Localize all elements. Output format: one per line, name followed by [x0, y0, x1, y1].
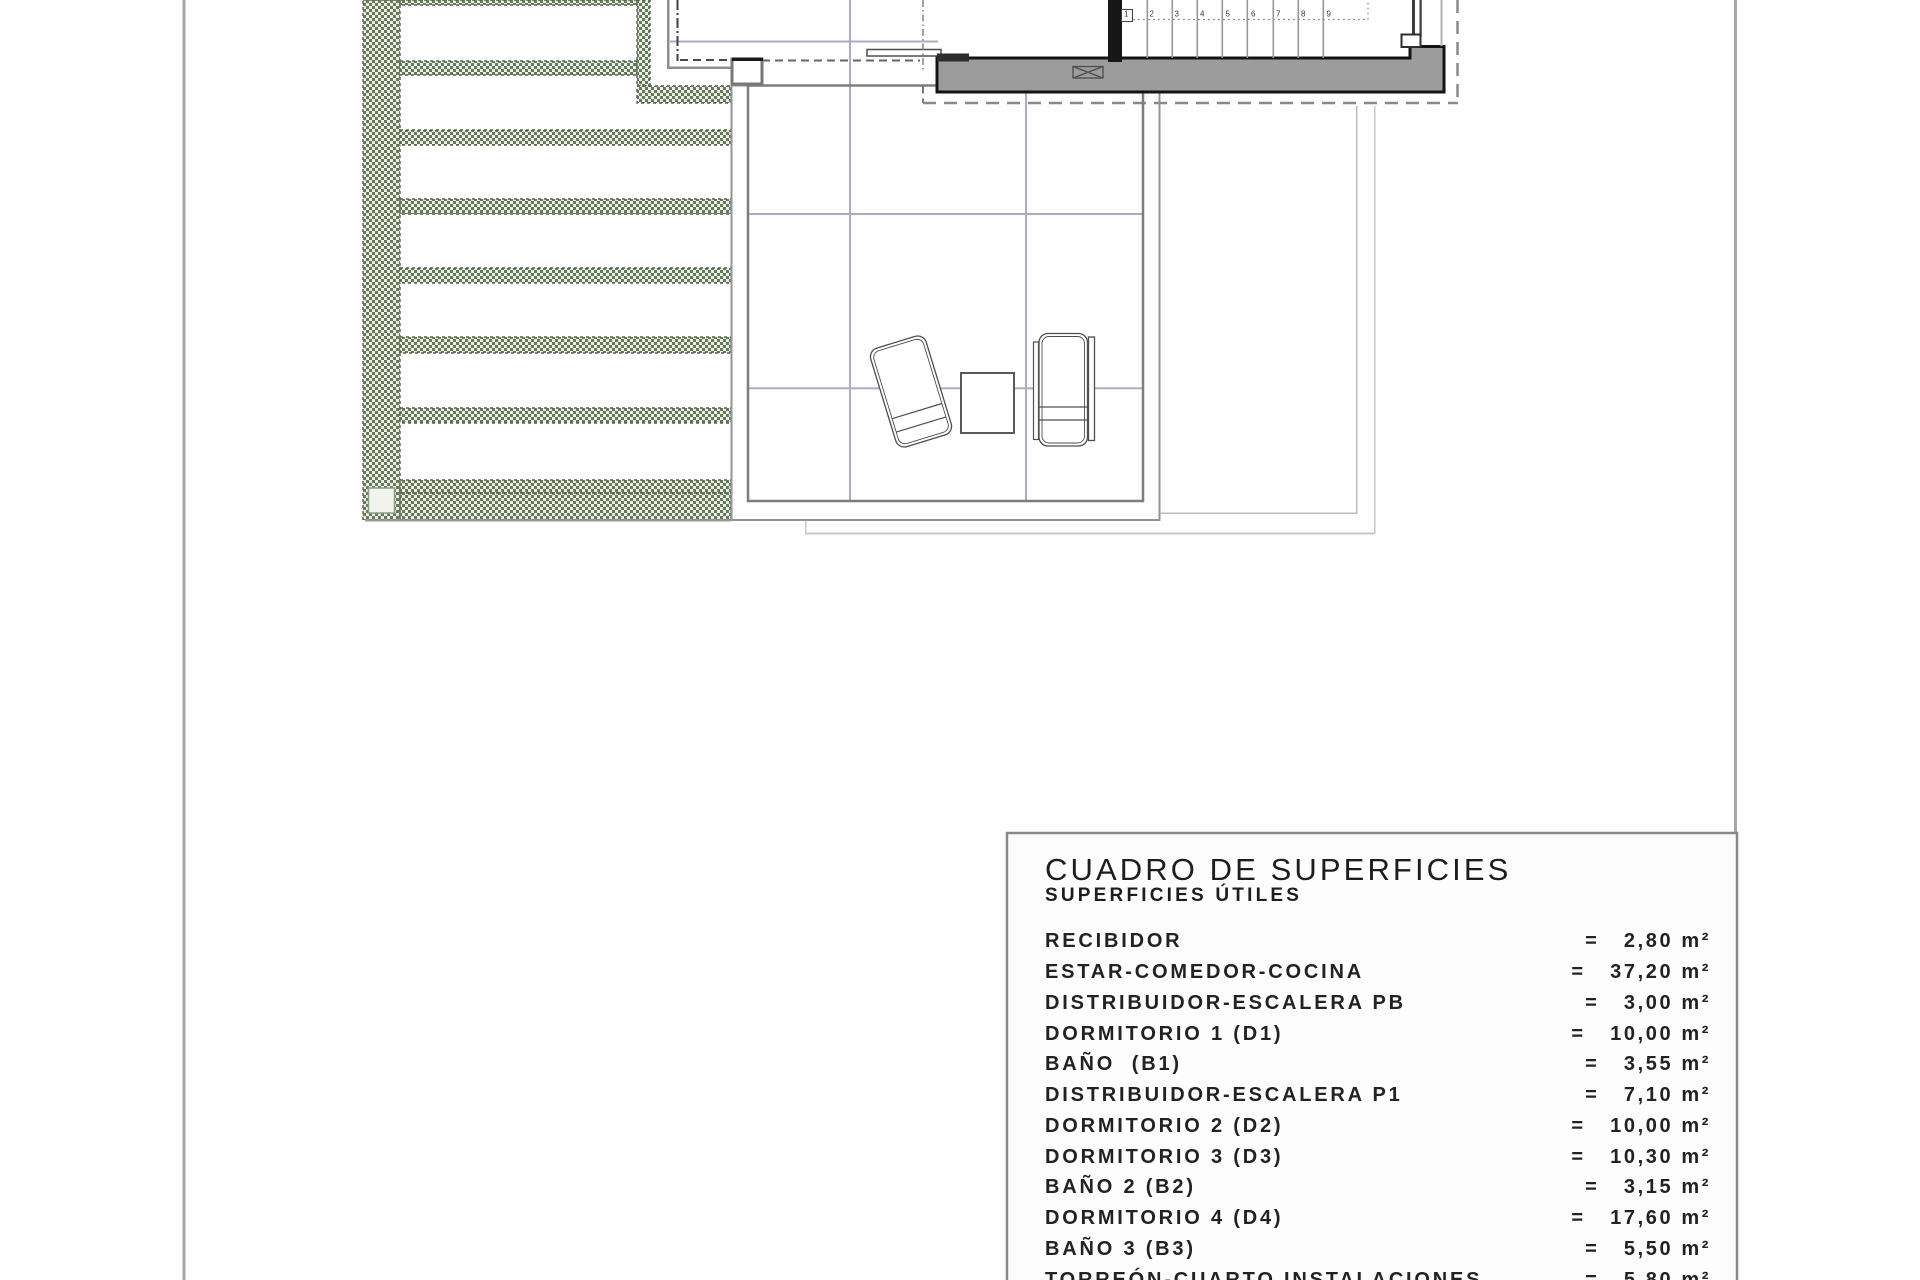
svg-text:8: 8 — [1301, 10, 1306, 19]
svg-text:1: 1 — [1124, 10, 1129, 19]
svg-text:7: 7 — [1276, 10, 1281, 19]
svg-text:5: 5 — [1226, 10, 1231, 19]
svg-text:4: 4 — [1200, 10, 1205, 19]
svg-text:2: 2 — [1150, 10, 1155, 19]
svg-text:9: 9 — [1327, 10, 1332, 19]
svg-text:3: 3 — [1175, 10, 1180, 19]
svg-text:6: 6 — [1251, 10, 1256, 19]
